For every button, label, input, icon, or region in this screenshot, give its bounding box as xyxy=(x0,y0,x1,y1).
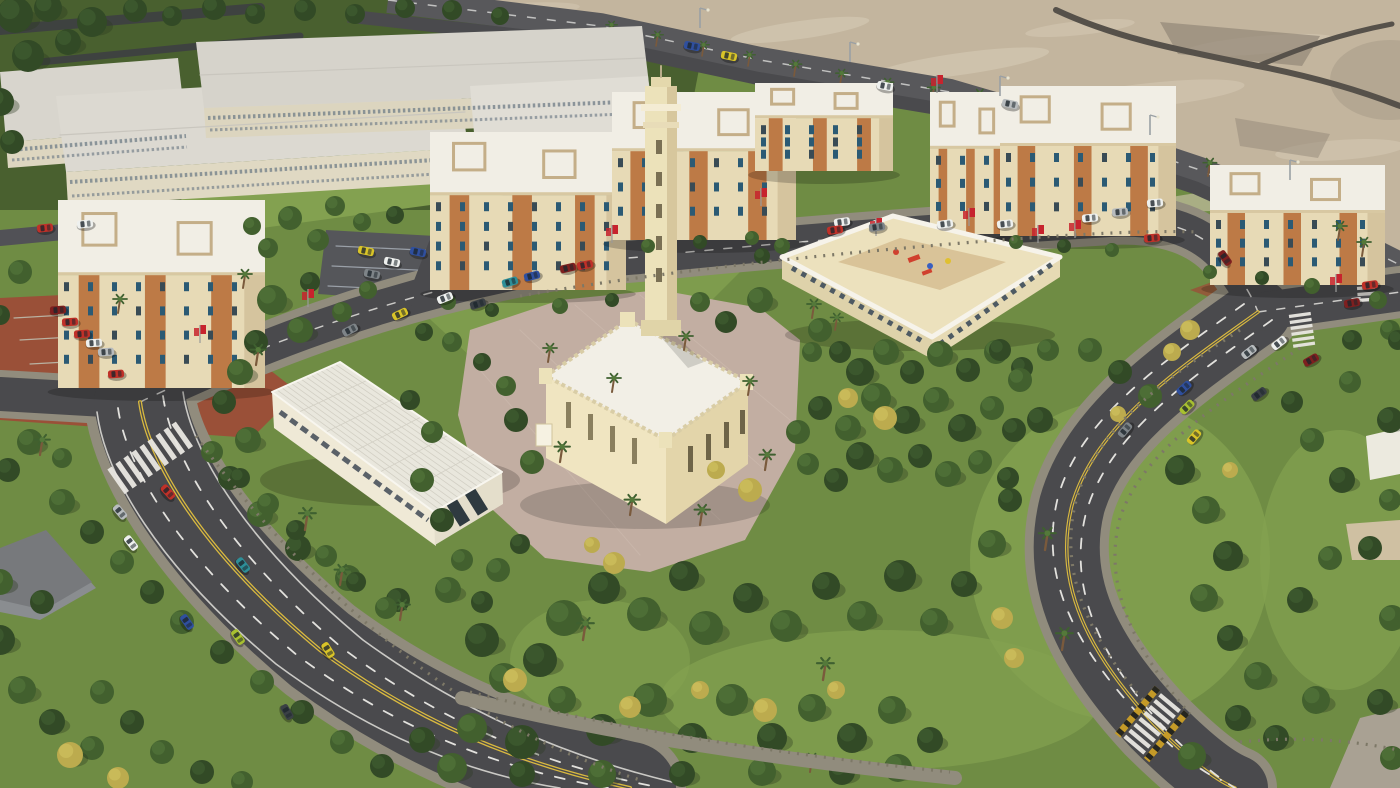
window xyxy=(112,282,117,291)
window xyxy=(1102,202,1107,211)
tree-highlight xyxy=(214,392,227,405)
red-banner-flag xyxy=(970,208,976,217)
tree-highlight xyxy=(1215,543,1232,560)
car-windshield xyxy=(830,227,835,233)
tree-highlight xyxy=(814,574,829,589)
window xyxy=(936,179,941,188)
tree-highlight xyxy=(468,625,487,644)
tree-highlight xyxy=(1219,627,1233,641)
palm-crown xyxy=(630,497,635,502)
tree-highlight xyxy=(735,585,752,602)
palm-crown xyxy=(835,315,839,319)
tree-highlight xyxy=(788,422,801,435)
window xyxy=(64,282,69,291)
palm-crown xyxy=(400,602,405,607)
window xyxy=(1240,220,1245,229)
tree-highlight xyxy=(999,468,1011,480)
tree-highlight xyxy=(694,236,702,244)
car-windshield xyxy=(53,307,57,313)
window xyxy=(484,222,489,231)
tree-highlight xyxy=(800,696,815,711)
window xyxy=(232,331,237,340)
tree-highlight xyxy=(925,389,939,403)
tree-highlight xyxy=(746,232,754,240)
tree-highlight xyxy=(1010,236,1018,244)
rect-shape xyxy=(706,434,711,460)
window xyxy=(484,202,489,211)
tree-highlight xyxy=(444,333,455,344)
street-light-head xyxy=(856,42,859,45)
window xyxy=(160,282,165,291)
window xyxy=(857,125,862,134)
tree-highlight xyxy=(492,8,502,18)
window xyxy=(618,182,623,191)
red-banner-flag xyxy=(963,211,968,219)
window xyxy=(160,306,165,315)
palm-crown xyxy=(684,334,689,339)
tree-highlight xyxy=(1227,707,1241,721)
tree-highlight xyxy=(1381,607,1395,621)
roof-parapet xyxy=(58,272,265,275)
window xyxy=(1360,220,1365,229)
facade-shade xyxy=(1158,146,1176,236)
car-rear-glass xyxy=(87,220,91,226)
car-body xyxy=(1112,207,1129,216)
car-rear-glass xyxy=(47,224,51,230)
window xyxy=(690,207,695,216)
rect-shape xyxy=(610,426,615,452)
tree-highlight xyxy=(309,230,321,242)
window xyxy=(160,331,165,340)
car-body xyxy=(62,317,79,326)
tree-highlight xyxy=(164,7,175,18)
car-windshield xyxy=(837,219,842,225)
car-windshield xyxy=(111,371,115,377)
car-rear-glass xyxy=(96,340,100,346)
tree-highlight xyxy=(10,262,23,275)
tree-highlight xyxy=(79,9,96,26)
facade-shade xyxy=(1368,213,1386,285)
street-light-head xyxy=(706,8,709,11)
rect-shape xyxy=(688,446,693,472)
polygon-shape xyxy=(1366,428,1400,480)
tree-highlight xyxy=(1182,321,1193,332)
tree-highlight xyxy=(82,522,95,535)
tree-highlight xyxy=(192,762,205,775)
tree-highlight xyxy=(849,603,866,620)
tree-highlight xyxy=(112,552,125,565)
tree-highlight xyxy=(1302,430,1315,443)
car-body xyxy=(37,223,54,233)
palm-crown xyxy=(1045,530,1051,536)
window xyxy=(1288,220,1293,229)
tree-highlight xyxy=(1390,331,1400,342)
palm-crown xyxy=(748,379,753,384)
rect-shape xyxy=(656,268,662,282)
tree-highlight xyxy=(125,0,138,13)
tree-highlight xyxy=(1331,469,1345,483)
tree-highlight xyxy=(848,360,863,375)
tree-highlight xyxy=(506,410,519,423)
circle-shape xyxy=(945,258,951,264)
window xyxy=(112,331,117,340)
tree-highlight xyxy=(203,442,215,454)
palm-crown xyxy=(812,302,817,307)
car-windshield xyxy=(1085,215,1090,221)
window xyxy=(580,222,585,231)
window xyxy=(1006,153,1011,162)
tree-highlight xyxy=(347,5,358,16)
tree-highlight xyxy=(1360,538,1373,551)
car-body xyxy=(997,219,1014,229)
roof-parapet xyxy=(1210,210,1385,213)
window xyxy=(184,355,189,364)
palm-crown xyxy=(1362,240,1367,245)
palm-crown xyxy=(118,297,123,302)
window xyxy=(532,222,537,231)
tree-highlight xyxy=(1381,490,1393,502)
tree-highlight xyxy=(810,398,823,411)
tree-highlight xyxy=(511,763,525,777)
apartment-building xyxy=(748,83,900,184)
car-rear-glass xyxy=(108,349,112,355)
window xyxy=(809,150,814,159)
palm-crown xyxy=(1208,160,1213,165)
window xyxy=(1360,257,1365,266)
tree-highlight xyxy=(387,207,397,217)
window xyxy=(1030,153,1035,162)
tree-highlight xyxy=(799,454,811,466)
window xyxy=(833,125,838,134)
tree-highlight xyxy=(910,446,923,459)
window xyxy=(556,202,561,211)
tree-highlight xyxy=(412,470,425,483)
tree-highlight xyxy=(775,239,784,248)
palm-crown xyxy=(305,510,311,516)
circle-shape xyxy=(927,263,933,269)
tree-highlight xyxy=(372,756,385,769)
window xyxy=(112,306,117,315)
building-roof xyxy=(58,200,265,275)
tree-highlight xyxy=(810,320,823,333)
car-rear-glass xyxy=(60,307,64,313)
palm-crown xyxy=(765,452,770,457)
window xyxy=(1312,257,1317,266)
window xyxy=(984,179,989,188)
window xyxy=(136,306,141,315)
window xyxy=(604,261,609,270)
window xyxy=(984,202,989,211)
tree-highlight xyxy=(332,732,345,745)
tree-highlight xyxy=(772,612,790,630)
window xyxy=(1288,257,1293,266)
tree-highlight xyxy=(993,608,1005,620)
rect-shape xyxy=(536,424,552,446)
tree-highlight xyxy=(259,287,276,304)
tree-highlight xyxy=(692,682,702,692)
tree-highlight xyxy=(950,416,965,431)
tree-highlight xyxy=(247,5,258,16)
tree-highlight xyxy=(880,698,895,713)
red-banner-flag xyxy=(606,228,611,236)
tree-highlight xyxy=(473,592,485,604)
window xyxy=(436,261,441,270)
tree-highlight xyxy=(109,768,121,780)
tree-highlight xyxy=(488,560,501,573)
tree-highlight xyxy=(444,1,455,12)
tree-highlight xyxy=(508,727,527,746)
window xyxy=(1126,178,1131,187)
tree-highlight xyxy=(1058,240,1066,248)
tree-highlight xyxy=(1304,688,1319,703)
rect-shape xyxy=(620,312,635,327)
window xyxy=(436,222,441,231)
window xyxy=(761,125,766,134)
tree-highlight xyxy=(232,469,243,480)
tree-highlight xyxy=(292,702,305,715)
window xyxy=(1054,178,1059,187)
window xyxy=(1312,220,1317,229)
window xyxy=(604,202,609,211)
street-light-head xyxy=(1296,160,1299,163)
window xyxy=(64,355,69,364)
tree-highlight xyxy=(831,342,843,354)
palm-crown xyxy=(748,53,752,57)
red-banner-flag xyxy=(762,188,768,197)
window xyxy=(532,242,537,251)
tree-highlight xyxy=(875,408,888,421)
window xyxy=(618,158,623,167)
tree-highlight xyxy=(553,299,562,308)
red-banner-flag xyxy=(1076,220,1082,229)
rect-shape xyxy=(641,320,681,336)
tree-highlight xyxy=(1256,272,1264,280)
tree-highlight xyxy=(296,0,308,12)
tree-highlight xyxy=(1004,420,1017,433)
tree-highlight xyxy=(1382,321,1393,332)
tree-highlight xyxy=(1164,344,1174,354)
tree-highlight xyxy=(423,422,435,434)
window xyxy=(714,207,719,216)
window xyxy=(1030,178,1035,187)
tree-highlight xyxy=(289,319,303,333)
car-windshield xyxy=(1150,200,1155,206)
palm-crown xyxy=(560,444,565,449)
car-windshield xyxy=(89,340,93,346)
window xyxy=(1312,239,1317,248)
tree-highlight xyxy=(922,610,937,625)
car-windshield xyxy=(101,349,105,355)
palm-crown xyxy=(794,62,798,66)
window xyxy=(1030,202,1035,211)
window xyxy=(436,202,441,211)
tree-highlight xyxy=(837,417,851,431)
tree-highlight xyxy=(51,491,65,505)
window xyxy=(714,158,719,167)
window xyxy=(809,125,814,134)
car-rear-glass xyxy=(1007,220,1011,226)
tree-highlight xyxy=(1305,279,1314,288)
window xyxy=(1102,178,1107,187)
car-rear-glass xyxy=(1122,209,1126,215)
tree-highlight xyxy=(902,362,915,375)
rect-shape xyxy=(656,236,662,250)
tree-highlight xyxy=(1110,362,1123,375)
tree-highlight xyxy=(354,214,364,224)
tree-highlight xyxy=(377,598,389,610)
tree-highlight xyxy=(1370,292,1380,302)
facade-accent-strip xyxy=(450,195,470,290)
tree-highlight xyxy=(260,239,271,250)
palm-crown xyxy=(548,346,553,351)
car-rear-glass xyxy=(1154,235,1158,241)
rect-shape xyxy=(643,122,679,128)
window xyxy=(738,182,743,191)
red-banner-flag xyxy=(1330,277,1335,285)
tree-highlight xyxy=(642,240,650,248)
window xyxy=(738,207,743,216)
tree-highlight xyxy=(474,354,484,364)
tree-highlight xyxy=(590,762,605,777)
roof-parapet xyxy=(755,115,893,118)
window xyxy=(580,242,585,251)
tree-highlight xyxy=(958,360,971,373)
red-banner-flag xyxy=(309,289,315,298)
palm-crown xyxy=(610,23,614,27)
tree-highlight xyxy=(749,289,763,303)
tree-highlight xyxy=(432,510,445,523)
tree-highlight xyxy=(1180,744,1195,759)
palm-crown xyxy=(700,507,705,512)
car-rear-glass xyxy=(1157,200,1161,206)
window xyxy=(556,222,561,231)
tree-highlight xyxy=(459,715,476,732)
facade-accent-strip xyxy=(769,118,783,171)
car-rear-glass xyxy=(84,331,88,337)
red-banner-flag xyxy=(194,328,199,336)
car-body xyxy=(86,338,103,347)
tree-highlight xyxy=(1369,691,1383,705)
rect-shape xyxy=(651,77,671,87)
red-banner-flag xyxy=(613,225,619,234)
window xyxy=(1078,178,1083,187)
window xyxy=(208,355,213,364)
street-light-head xyxy=(1006,76,1009,79)
tree-highlight xyxy=(505,670,518,683)
tree-highlight xyxy=(826,470,839,483)
tree-highlight xyxy=(334,303,345,314)
tree-highlight xyxy=(1111,407,1120,416)
rect-shape xyxy=(740,410,745,434)
tree-highlight xyxy=(1344,331,1355,342)
car-body xyxy=(108,369,125,378)
rect-shape xyxy=(656,172,662,186)
rect-shape xyxy=(588,414,593,440)
window xyxy=(88,355,93,364)
window xyxy=(508,261,513,270)
palm-crown xyxy=(583,620,589,626)
tree-highlight xyxy=(982,398,995,411)
tree-highlight xyxy=(439,755,456,772)
window xyxy=(785,137,790,146)
tree-highlight xyxy=(437,579,451,593)
tree-highlight xyxy=(10,678,25,693)
tree-highlight xyxy=(953,573,967,587)
palm-crown xyxy=(1338,224,1343,229)
tree-highlight xyxy=(526,645,545,664)
tree-highlight xyxy=(590,574,608,592)
window xyxy=(184,306,189,315)
building-roof xyxy=(430,132,626,195)
tree-highlight xyxy=(1080,340,1093,353)
tree-highlight xyxy=(512,535,523,546)
car-windshield xyxy=(77,331,81,337)
window xyxy=(136,331,141,340)
tree-highlight xyxy=(840,389,851,400)
tree-highlight xyxy=(402,391,413,402)
tree-highlight xyxy=(280,208,293,221)
window xyxy=(785,150,790,159)
tree-highlight xyxy=(233,772,245,784)
tree-highlight xyxy=(2,132,15,145)
window xyxy=(738,158,743,167)
car-windshield xyxy=(40,225,45,231)
tree-highlight xyxy=(550,688,565,703)
window xyxy=(232,306,237,315)
red-banner-flag xyxy=(1069,223,1074,231)
tree-highlight xyxy=(244,218,254,228)
facade-accent-strip xyxy=(813,118,827,171)
window xyxy=(184,331,189,340)
facade-accent-strip xyxy=(966,149,975,234)
tree-highlight xyxy=(348,573,359,584)
tree-highlight xyxy=(59,744,73,758)
window xyxy=(460,261,465,270)
roof-parapet xyxy=(430,192,626,195)
window xyxy=(232,282,237,291)
community-rendering-canvas xyxy=(0,0,1400,788)
red-banner-flag xyxy=(1032,228,1037,236)
tree-highlight xyxy=(929,343,943,357)
tree-highlight xyxy=(237,429,251,443)
red-banner-flag xyxy=(201,325,207,334)
tree-highlight xyxy=(750,760,765,775)
window xyxy=(960,156,965,165)
palm-crown xyxy=(256,347,261,352)
window xyxy=(1264,257,1269,266)
tree-highlight xyxy=(848,444,863,459)
palm-crown xyxy=(40,437,45,442)
window xyxy=(508,202,513,211)
palm-crown xyxy=(612,376,617,381)
tree-highlight xyxy=(630,599,649,618)
window xyxy=(714,182,719,191)
aerial-render-scene xyxy=(0,0,1400,788)
rect-shape xyxy=(659,432,672,448)
palm-crown xyxy=(656,33,660,37)
rect-shape xyxy=(656,140,662,154)
tree-highlight xyxy=(671,763,685,777)
tree-highlight xyxy=(246,332,259,345)
tree-highlight xyxy=(692,293,703,304)
car-rear-glass xyxy=(72,319,76,325)
window xyxy=(618,207,623,216)
window xyxy=(532,261,537,270)
window xyxy=(1054,202,1059,211)
tree-highlight xyxy=(212,642,225,655)
window xyxy=(1336,257,1341,266)
car-windshield xyxy=(65,319,69,325)
